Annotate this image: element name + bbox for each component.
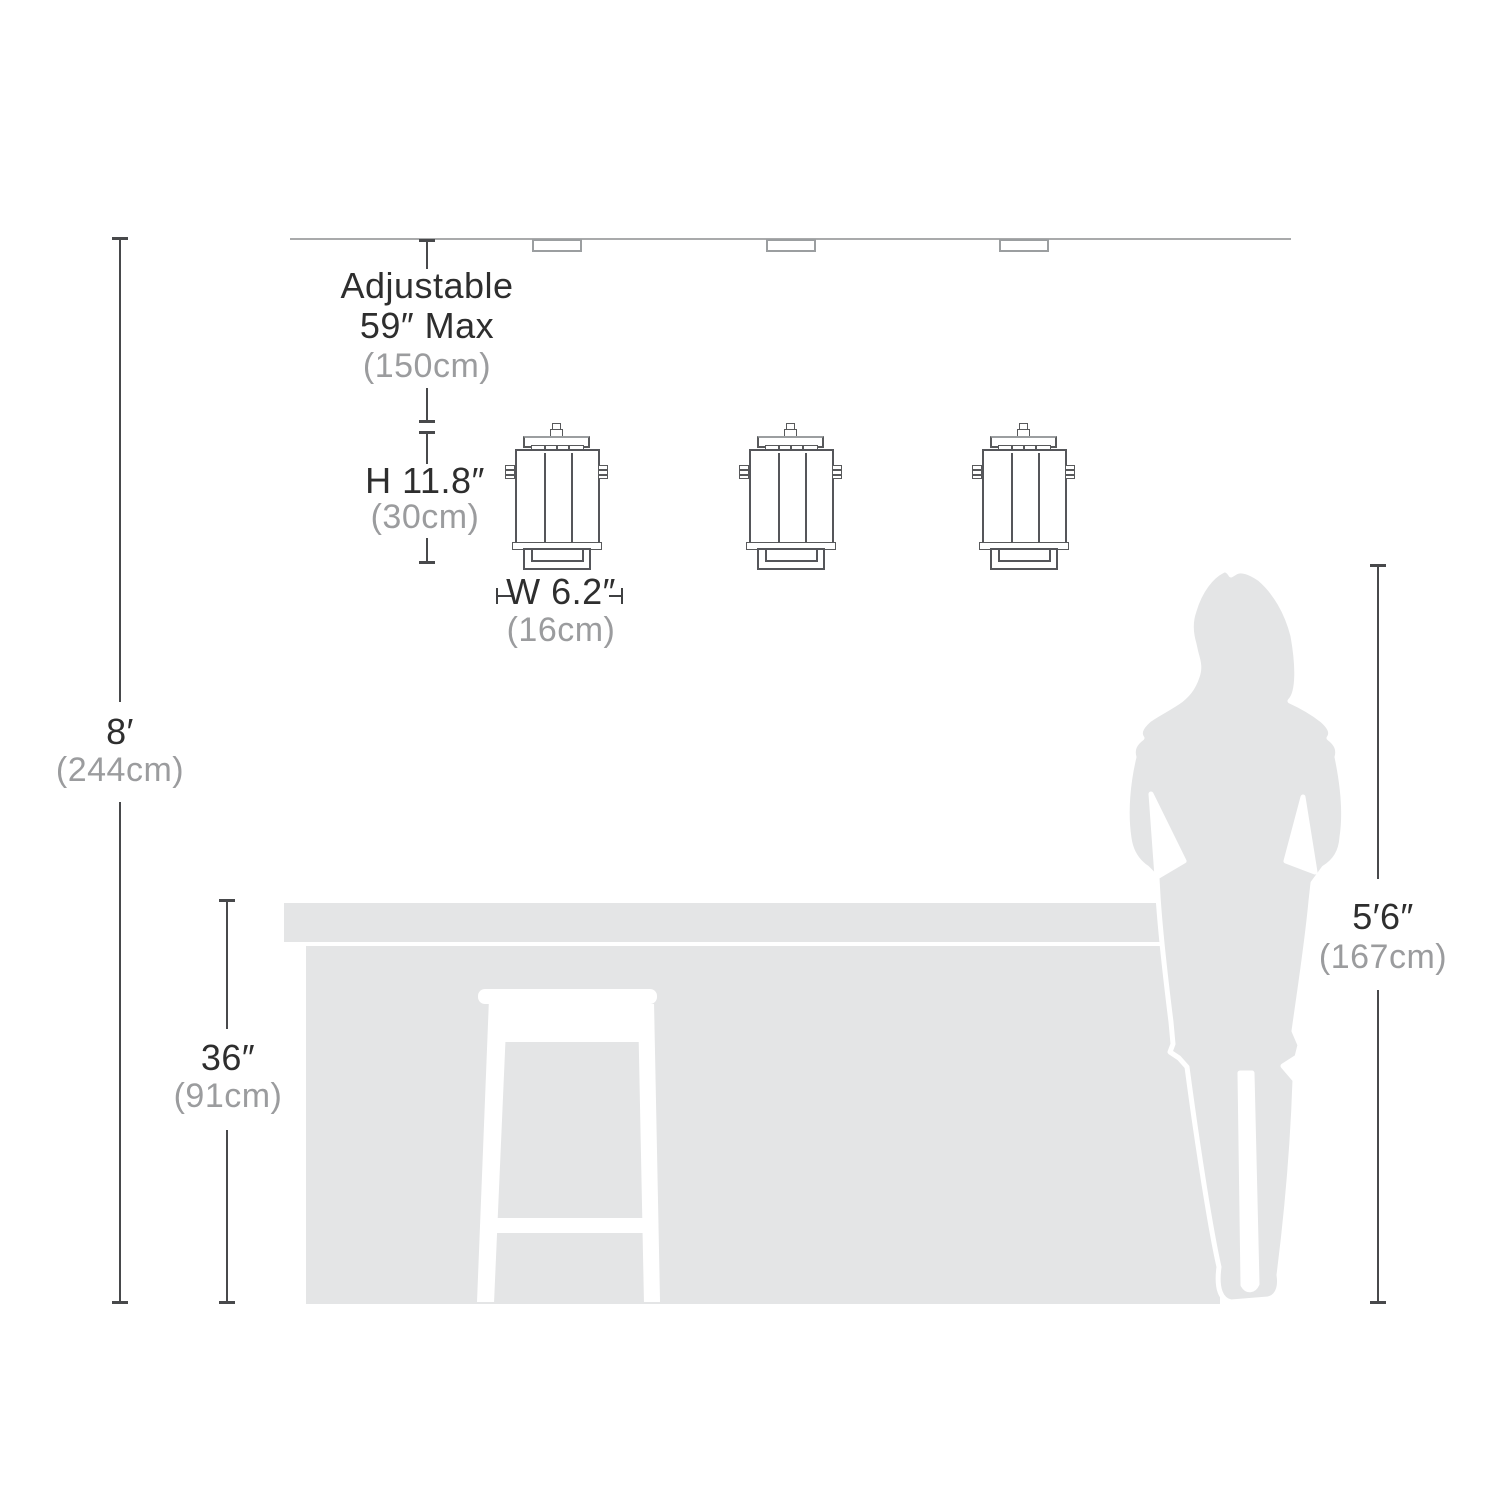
dim-tick [419, 561, 435, 564]
pendant-bottom-frame-inner [998, 548, 1051, 562]
counter-height-imperial: 36″ [78, 1038, 378, 1077]
pendant-side-knob [739, 465, 749, 479]
bar-stool-apron [492, 1003, 643, 1042]
person-height-metric: (167cm) [1233, 937, 1501, 978]
dim-tick [219, 1301, 235, 1304]
adjustable-label-line1: Adjustable [277, 266, 577, 306]
fixture-width-imperial: W 6.2″ [411, 572, 711, 611]
adjustable-label-line2: 59″ Max [277, 306, 577, 346]
pendant-side-knob [832, 465, 842, 479]
pendant-side-knob [598, 465, 608, 479]
pendant-canopy [532, 239, 582, 252]
fixture-height-label: H 11.8″ (30cm) [275, 462, 575, 536]
pendant-shade [749, 449, 834, 547]
pendant-size-guide-diagram: 8′ (244cm) Adjustable 59″ Max (150cm) H … [0, 0, 1501, 1501]
pendant-side-knob [972, 465, 982, 479]
adjustable-label-metric: (150cm) [277, 346, 577, 386]
person-height-label: 5′6″ (167cm) [1233, 896, 1501, 978]
pendant-cord [1022, 252, 1025, 425]
person-height-imperial: 5′6″ [1233, 896, 1501, 937]
counter-height-metric: (91cm) [78, 1077, 378, 1116]
adjustable-drop-label: Adjustable 59″ Max (150cm) [277, 266, 577, 386]
dim-line [119, 240, 121, 702]
pendant-canopy [766, 239, 816, 252]
pendant-canopy [999, 239, 1049, 252]
pendant-light-2 [743, 239, 839, 579]
ceiling-height-imperial: 8′ [0, 712, 270, 751]
bar-stool-seat [478, 989, 657, 1004]
dim-line [226, 1130, 228, 1303]
kitchen-counter-base [306, 946, 1220, 1304]
counter-height-label: 36″ (91cm) [78, 1038, 378, 1116]
kitchen-counter-top [284, 903, 1220, 942]
ceiling-height-metric: (244cm) [0, 751, 270, 790]
bar-stool-footrest [486, 1218, 654, 1233]
pendant-light-3 [976, 239, 1072, 579]
fixture-width-metric: (16cm) [411, 611, 711, 650]
pendant-bottom-frame-inner [765, 548, 818, 562]
pendant-bottom-frame-inner [531, 548, 584, 562]
pendant-shade [982, 449, 1067, 547]
pendant-side-knob [1065, 465, 1075, 479]
dim-tick [419, 420, 435, 423]
fixture-height-metric: (30cm) [275, 499, 575, 536]
dim-line [226, 902, 228, 1029]
ceiling-height-label: 8′ (244cm) [0, 712, 270, 790]
fixture-width-label: W 6.2″ (16cm) [411, 572, 711, 650]
dim-tick [112, 1301, 128, 1304]
dim-line [426, 388, 428, 421]
dim-line [426, 538, 428, 563]
fixture-height-imperial: H 11.8″ [275, 462, 575, 499]
pendant-cord [789, 252, 792, 425]
